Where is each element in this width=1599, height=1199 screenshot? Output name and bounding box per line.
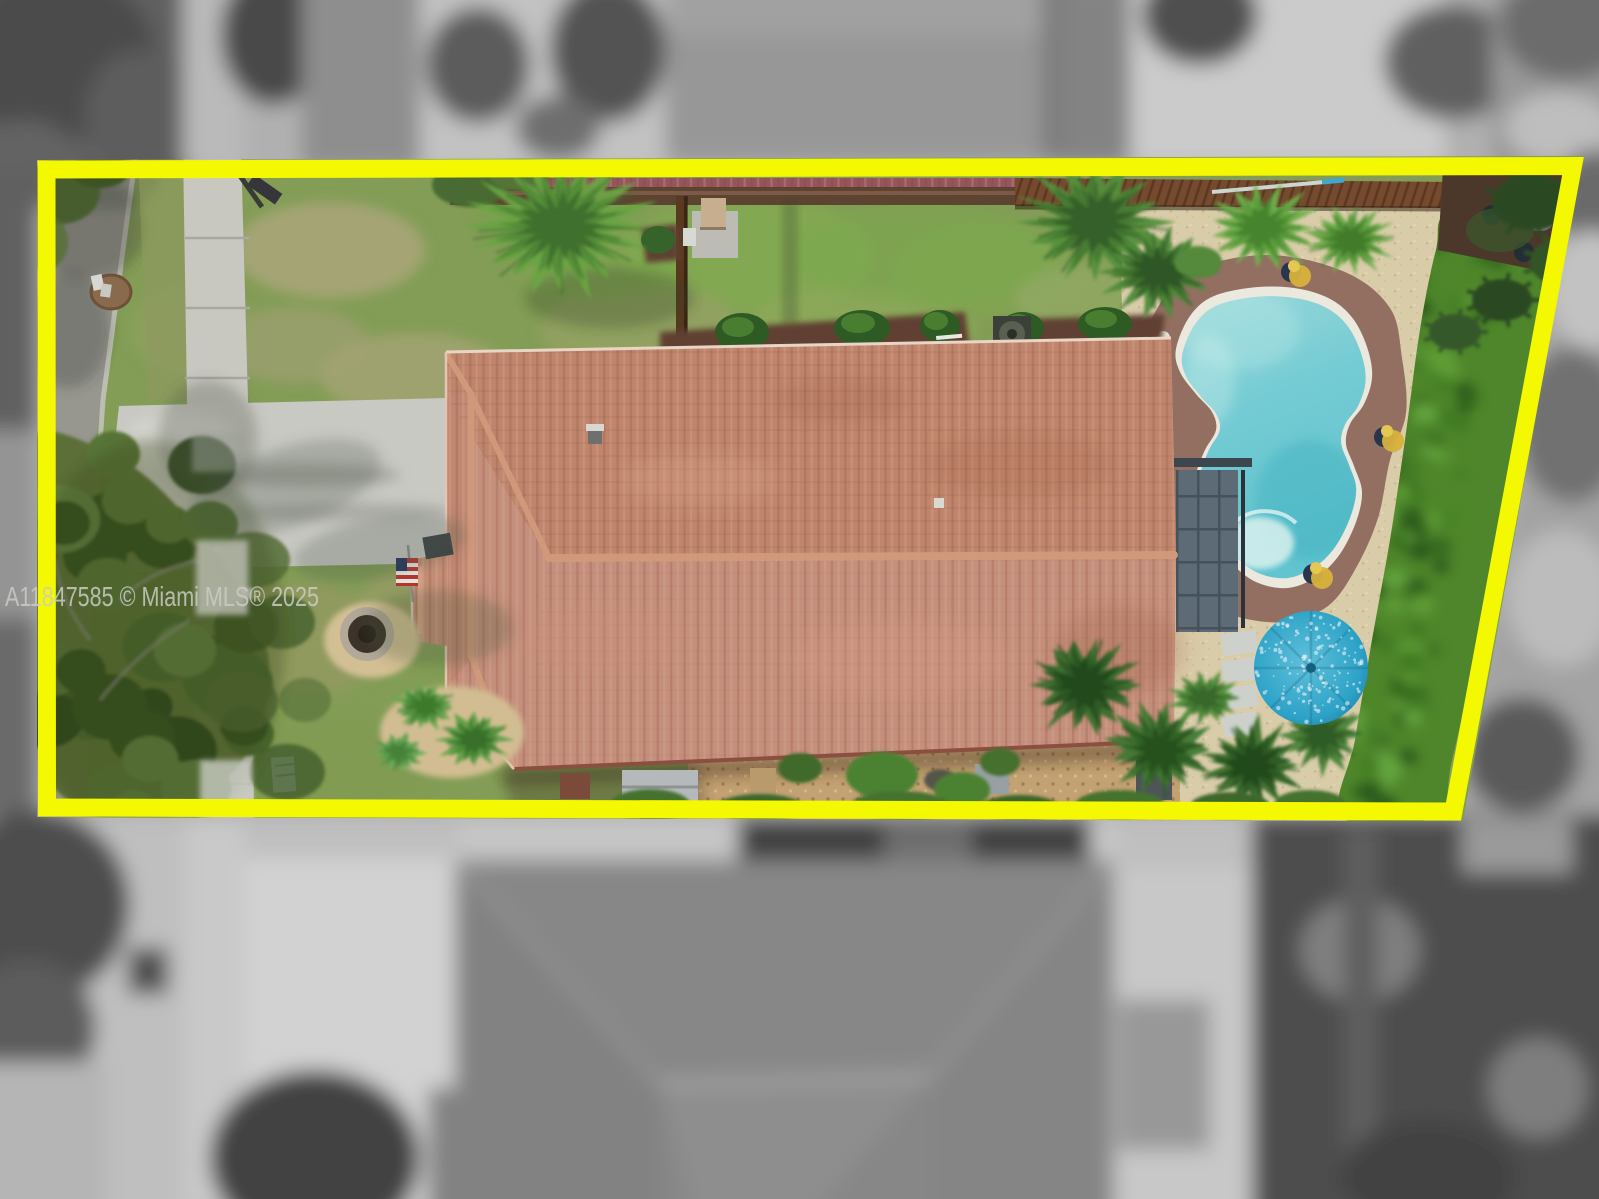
svg-text:A11847585 © Miami MLS® 2025: A11847585 © Miami MLS® 2025 (5, 581, 319, 612)
